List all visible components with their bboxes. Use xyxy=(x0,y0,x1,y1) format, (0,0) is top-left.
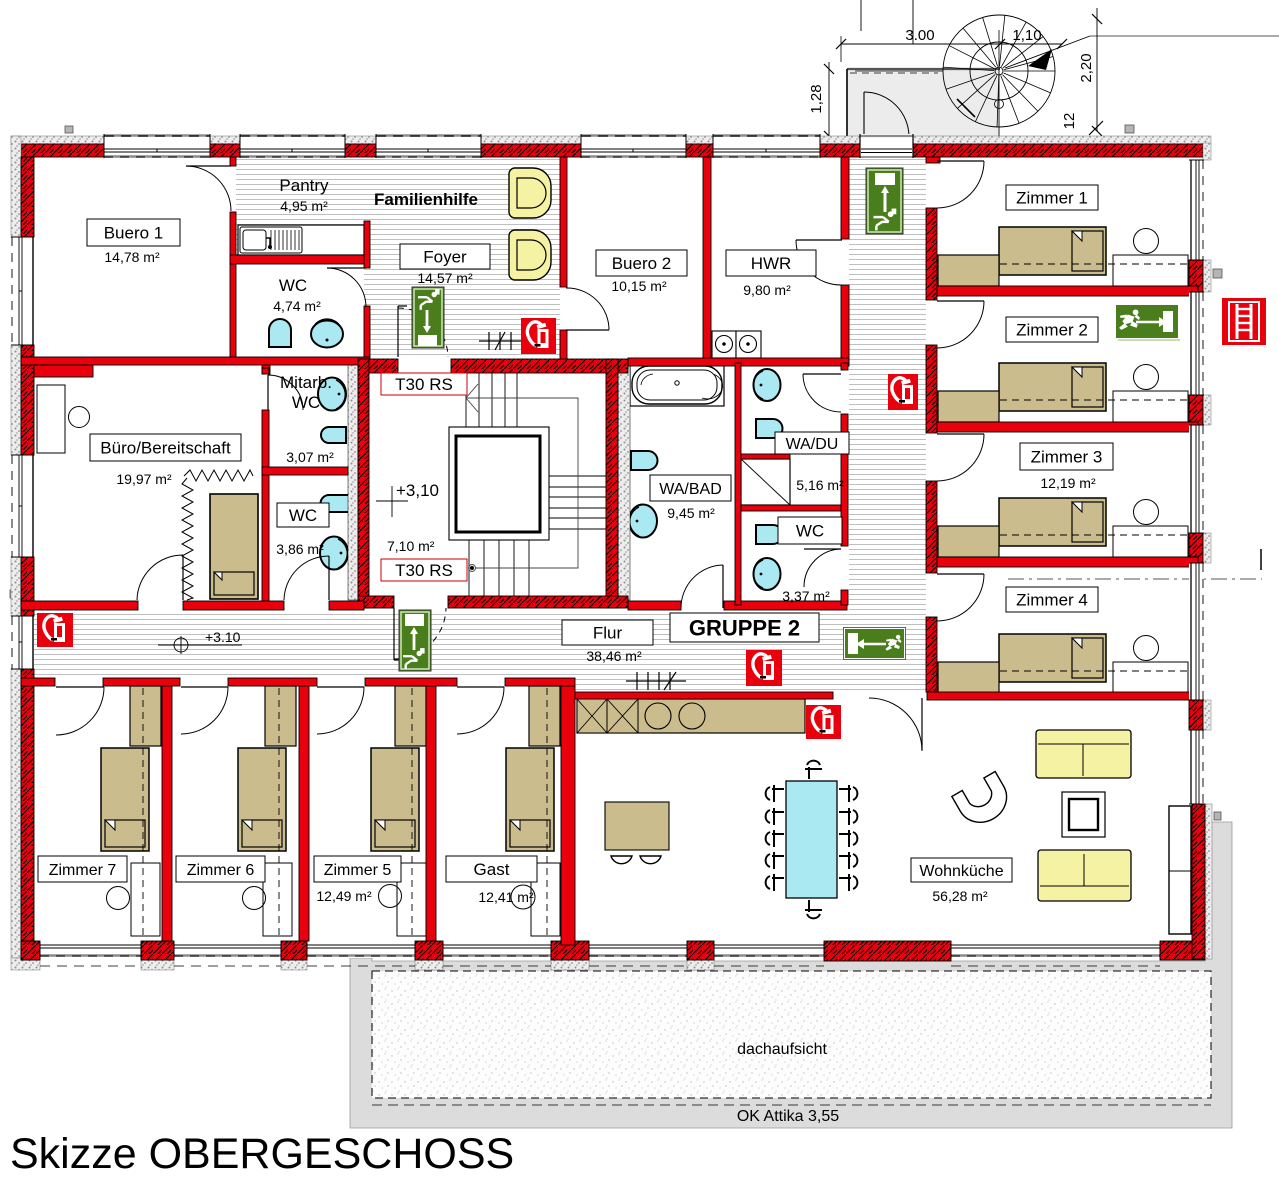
svg-text:14,78 m²: 14,78 m² xyxy=(104,249,160,265)
svg-text:12,49 m²: 12,49 m² xyxy=(316,888,372,904)
svg-text:4,74 m²: 4,74 m² xyxy=(273,298,321,314)
svg-text:3,86 m²: 3,86 m² xyxy=(276,541,324,557)
svg-text:Pantry: Pantry xyxy=(279,176,329,195)
svg-text:1,28: 1,28 xyxy=(808,84,825,113)
svg-text:12,19 m²: 12,19 m² xyxy=(1040,475,1096,491)
svg-text:GRUPPE 2: GRUPPE 2 xyxy=(689,615,800,640)
svg-text:4,95 m²: 4,95 m² xyxy=(280,198,328,214)
svg-text:5,16 m²: 5,16 m² xyxy=(796,477,844,493)
svg-text:3,37 m²: 3,37 m² xyxy=(782,588,830,604)
svg-text:38,46 m²: 38,46 m² xyxy=(586,648,642,664)
svg-text:Gast: Gast xyxy=(474,860,510,879)
svg-text:7,10 m²: 7,10 m² xyxy=(387,538,435,554)
svg-text:Zimmer 6: Zimmer 6 xyxy=(187,862,255,879)
svg-text:10,15 m²: 10,15 m² xyxy=(611,278,667,294)
svg-text:9,45 m²: 9,45 m² xyxy=(667,505,715,521)
svg-text:Zimmer 2: Zimmer 2 xyxy=(1016,321,1088,340)
svg-text:12: 12 xyxy=(1061,113,1078,130)
svg-text:dachaufsicht: dachaufsicht xyxy=(737,1041,827,1058)
svg-text:14,57 m²: 14,57 m² xyxy=(417,270,473,286)
svg-text:+3,10: +3,10 xyxy=(396,481,439,500)
svg-text:56,28 m²: 56,28 m² xyxy=(932,888,988,904)
svg-text:Mitarb.: Mitarb. xyxy=(280,373,332,392)
svg-text:2,20: 2,20 xyxy=(1078,53,1095,82)
svg-text:WC: WC xyxy=(292,393,320,412)
svg-text:Zimmer 4: Zimmer 4 xyxy=(1016,591,1088,610)
svg-text:T30 RS: T30 RS xyxy=(395,561,453,580)
svg-text:HWR: HWR xyxy=(751,254,792,273)
svg-text:WC: WC xyxy=(289,506,317,525)
svg-text:19,97 m²: 19,97 m² xyxy=(116,471,172,487)
svg-text:WC: WC xyxy=(279,276,307,295)
svg-text:3,07 m²: 3,07 m² xyxy=(286,449,334,465)
svg-text:WA/BAD: WA/BAD xyxy=(659,481,722,498)
svg-text:Flur: Flur xyxy=(593,624,623,643)
svg-text:Buero 2: Buero 2 xyxy=(612,254,672,273)
svg-text:WA/DU: WA/DU xyxy=(786,436,839,453)
svg-text:Familienhilfe: Familienhilfe xyxy=(374,190,478,209)
svg-text:3.00: 3.00 xyxy=(905,27,934,44)
svg-text:Wohnküche: Wohnküche xyxy=(919,863,1003,880)
svg-text:Skizze OBERGESCHOSS: Skizze OBERGESCHOSS xyxy=(10,1130,514,1178)
svg-text:Zimmer 7: Zimmer 7 xyxy=(49,862,117,879)
svg-text:Zimmer 5: Zimmer 5 xyxy=(324,862,392,879)
svg-text:Foyer: Foyer xyxy=(423,248,467,267)
svg-text:OK Attika 3,55: OK Attika 3,55 xyxy=(737,1108,839,1125)
svg-text:Zimmer 3: Zimmer 3 xyxy=(1031,448,1103,467)
svg-text:+3.10: +3.10 xyxy=(205,629,241,645)
svg-text:WC: WC xyxy=(796,522,824,541)
svg-text:Büro/Bereitschaft: Büro/Bereitschaft xyxy=(100,439,231,458)
svg-text:9,80 m²: 9,80 m² xyxy=(743,282,791,298)
svg-text:T30 RS: T30 RS xyxy=(395,375,453,394)
svg-text:Buero 1: Buero 1 xyxy=(104,224,164,243)
svg-text:12,41 m²: 12,41 m² xyxy=(478,889,534,905)
svg-text:1,10: 1,10 xyxy=(1012,27,1041,44)
svg-text:Zimmer 1: Zimmer 1 xyxy=(1016,189,1088,208)
